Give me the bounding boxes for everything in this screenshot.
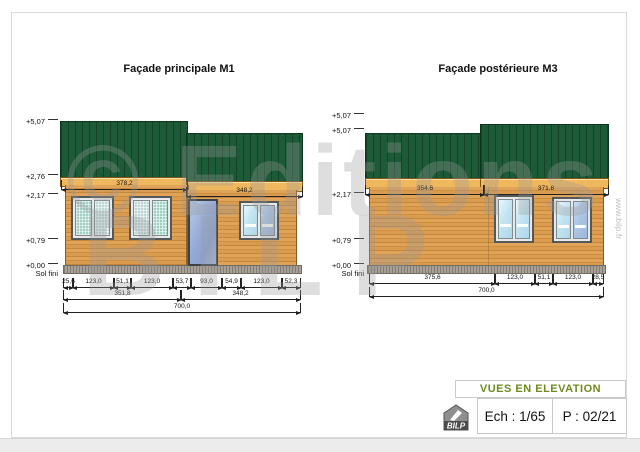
window-pane	[515, 199, 530, 239]
window-pane	[75, 200, 92, 236]
m3-dim-roof-left: 354.6	[365, 185, 485, 195]
m1-dim-roof-left: 378,2	[61, 180, 188, 190]
m1-roof-left	[60, 121, 188, 178]
window-rail	[558, 225, 569, 228]
m1-level-079: +0,79	[8, 236, 58, 245]
m3-dim-seg: 375,6	[369, 274, 496, 284]
window-rail	[262, 224, 273, 227]
window-rail	[517, 224, 528, 227]
m1-window-2	[129, 196, 172, 240]
m3-dim-roof-right: 371.8	[483, 185, 609, 195]
m3-level-079: +0,79	[314, 236, 364, 245]
m3-window-1	[494, 195, 534, 243]
window-pane	[152, 200, 169, 236]
m1-window-3	[239, 201, 279, 240]
m1-level-507: +5,07	[8, 117, 58, 126]
m3-ground-slab	[367, 265, 606, 274]
window-pane	[94, 200, 111, 236]
m1-level-217: +2,17	[8, 191, 58, 200]
window-pane	[573, 201, 588, 239]
m1-dim-total: 700,0	[63, 303, 301, 313]
bilp-logo: BILP	[441, 404, 471, 434]
window-pane	[556, 201, 571, 239]
m1-roof-right	[186, 133, 303, 182]
m1-ground-slab	[63, 265, 302, 274]
logo-text: BILP	[447, 422, 466, 431]
m3-module-joint	[488, 187, 489, 265]
m1-module-joint	[186, 190, 187, 265]
drawing-sheet: Façade principale M1 Façade postérieure …	[0, 0, 640, 452]
m1-dim-roof-right: 348,2	[186, 187, 303, 197]
m1-dim-module-left: 351,8	[63, 290, 182, 300]
window-pane	[133, 200, 150, 236]
m3-roof-right	[480, 124, 609, 179]
m1-glazed-door	[188, 199, 218, 266]
window-pane	[260, 205, 275, 236]
m3-level-507b: +5,07	[314, 126, 364, 135]
facade-m3-title: Façade postérieure M3	[398, 63, 598, 75]
window-rail	[500, 224, 511, 227]
watermark-url-vertical: www.bilp.fr	[614, 198, 624, 239]
window-rail	[245, 224, 256, 227]
page-break-strip	[0, 438, 640, 452]
m3-roof-left	[365, 133, 482, 179]
titleblock-title: VUES EN ELEVATION	[455, 380, 626, 398]
m1-level-solfini: Sol fini	[8, 269, 58, 278]
m1-window-1	[71, 196, 114, 240]
m3-level-507a: +5,07	[314, 111, 364, 120]
titleblock-scale: Ech : 1/65	[477, 398, 553, 434]
m1-dim-seg: 52,3	[281, 278, 301, 288]
m1-dim-module-right: 348,2	[180, 290, 301, 300]
m3-dim-total: 700,0	[369, 287, 604, 297]
m3-window-2	[552, 197, 592, 243]
window-pane	[243, 205, 258, 236]
facade-m1-title: Façade principale M1	[79, 63, 279, 75]
m3-dim-seg: 28,5	[592, 274, 604, 284]
window-rail	[575, 225, 586, 228]
titleblock-page: P : 02/21	[553, 398, 627, 434]
window-pane	[498, 199, 513, 239]
